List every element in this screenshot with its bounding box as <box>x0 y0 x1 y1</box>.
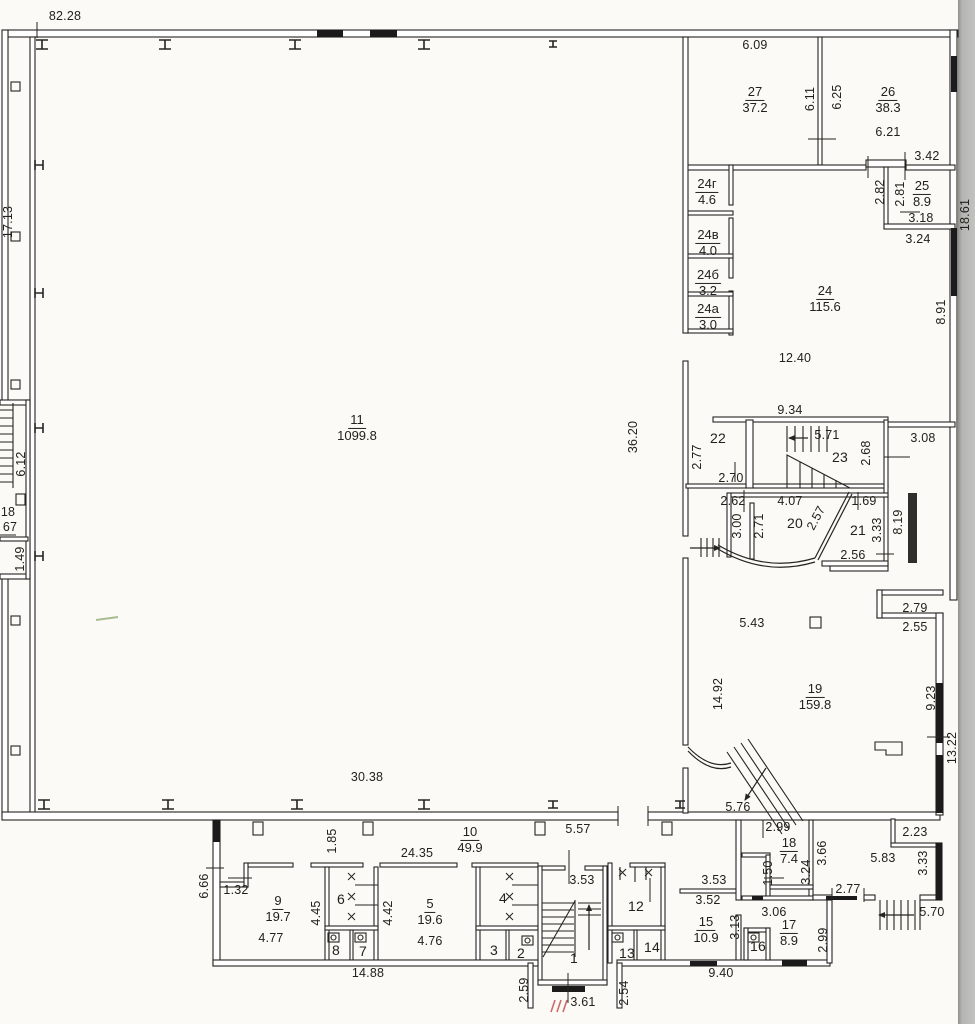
dim-left-stair-h: 6.12 <box>14 451 28 476</box>
room-label-13: 13 <box>619 945 635 961</box>
dim-r19-n1: 2.79 <box>902 601 927 615</box>
dim-r26-height: 6.25 <box>830 84 844 109</box>
room-label-9: 919.7 <box>265 894 290 924</box>
dim-door-24: 3.42 <box>914 149 939 163</box>
floor-plan-svg <box>0 0 975 1024</box>
dim-r20-h2: 2.71 <box>752 513 766 538</box>
room-label-15: 1510.9 <box>693 915 718 945</box>
dim-r18-right: 3.24 <box>799 859 813 884</box>
dim-r9-height: 4.45 <box>309 900 323 925</box>
dim-entry-steps: 5.70 <box>919 905 944 919</box>
dim-r19-r2: 13.22 <box>945 732 959 764</box>
dim-r17-outer: 2.99 <box>816 927 830 952</box>
dim-hall-width: 30.38 <box>351 770 383 784</box>
red-section-mark <box>551 1000 567 1012</box>
dim-r24-height: 8.91 <box>934 299 948 324</box>
dim-stair1-top: 3.53 <box>569 873 594 887</box>
dim-r19-height: 14.92 <box>711 678 725 710</box>
dim-porch-width: 5.83 <box>870 851 895 865</box>
dim-r22-height: 2.77 <box>690 444 704 469</box>
dim-r20-t1: 2.62 <box>720 494 745 508</box>
room-label-24b: 24б3.2 <box>695 268 721 298</box>
dim-left-stair-b: 1.49 <box>13 546 27 571</box>
dim-308: 3.08 <box>910 431 935 445</box>
dim-r25-w1: 3.18 <box>908 211 933 225</box>
dim-bl-height: 6.66 <box>197 873 211 898</box>
dim-r26-width: 6.21 <box>875 125 900 139</box>
room-label-24: 24115.6 <box>809 284 841 314</box>
dim-r25-h2: 2.81 <box>893 181 907 206</box>
dim-right-height: 18.61 <box>958 199 972 231</box>
room-label-22: 22 <box>710 430 726 446</box>
room-label-24a: 24а3.0 <box>695 302 721 332</box>
dim-r25-w2: 3.24 <box>905 232 930 246</box>
room-label-11: 111099.8 <box>337 413 377 443</box>
dim-hall-height: 36.20 <box>626 421 640 453</box>
dim-r22-width: 2.70 <box>718 471 743 485</box>
dim-r9-width: 4.77 <box>258 931 283 945</box>
dim-r27-width: 6.09 <box>742 38 767 52</box>
room-label-24g: 24г4.6 <box>695 177 718 207</box>
room-label-10: 1049.9 <box>457 825 482 855</box>
room-label-3: 3 <box>490 942 498 958</box>
dim-br-top: 2.99 <box>765 820 790 834</box>
room-label-26: 2638.3 <box>875 85 900 115</box>
dim-r21-top: 1.69 <box>851 494 876 508</box>
dim-r15-height: 3.13 <box>728 914 742 939</box>
left-stair-area: 67 <box>3 520 17 534</box>
dim-r15-t2: 3.53 <box>701 873 726 887</box>
dim-overall-top: 82.28 <box>49 9 81 23</box>
dim-bl-notch: 1.32 <box>223 883 248 897</box>
dim-r20-h1: 3.00 <box>730 513 744 538</box>
dim-r19-top: 5.43 <box>739 616 764 630</box>
room-label-2: 2 <box>517 945 525 961</box>
room-label-16: 16 <box>750 938 766 954</box>
room-label-14: 14 <box>644 939 660 955</box>
room-label-18: 187.4 <box>780 836 798 866</box>
room-label-23: 23 <box>832 449 848 465</box>
room-label-27: 2737.2 <box>742 85 767 115</box>
dim-corridor-w: 5.57 <box>565 822 590 836</box>
dim-r19-bottom: 5.76 <box>725 800 750 814</box>
dim-porch-door: 2.77 <box>835 882 860 896</box>
room-label-5: 519.6 <box>417 897 442 927</box>
room-label-8: 8 <box>332 942 340 958</box>
dim-stair1-bottom: 3.61 <box>570 995 595 1009</box>
room-label-6: 6 <box>337 891 345 907</box>
dim-vestibule-r: 2.54 <box>617 980 631 1005</box>
dim-r18-nook: 1.50 <box>761 860 775 885</box>
left-stair-num: 18 <box>1 505 15 519</box>
dim-r21-width: 2.56 <box>840 548 865 562</box>
dim-r5-height: 4.42 <box>381 900 395 925</box>
dim-shaft-height: 8.19 <box>891 509 905 534</box>
room-label-20: 20 <box>787 515 803 531</box>
room-label-24v: 24в4.0 <box>695 228 720 258</box>
dim-corridor-n: 1.85 <box>325 828 339 853</box>
room-label-21: 21 <box>850 522 866 538</box>
dim-r23-height: 2.68 <box>859 440 873 465</box>
dim-r5-width: 4.76 <box>417 934 442 948</box>
green-scan-mark <box>96 617 118 620</box>
dim-porch-top: 2.23 <box>902 825 927 839</box>
dim-r24-south: 9.34 <box>777 403 802 417</box>
dim-r19-n2: 2.55 <box>902 620 927 634</box>
room-label-17: 178.9 <box>780 918 798 948</box>
dim-block-width: 24.35 <box>401 846 433 860</box>
dim-r25-h1: 2.82 <box>873 179 887 204</box>
dim-overall-left: 17.13 <box>1 206 15 238</box>
dim-r24-width: 12.40 <box>779 351 811 365</box>
dim-bc-bottom: 9.40 <box>708 966 733 980</box>
dim-r21-height: 3.33 <box>870 517 884 542</box>
dim-bl-bottom: 14.88 <box>352 966 384 980</box>
room-label-1: 1 <box>570 950 578 966</box>
curved-walls <box>688 492 852 769</box>
room-label-7: 7 <box>359 943 367 959</box>
room-label-19: 19159.8 <box>799 682 832 712</box>
room-label-12: 12 <box>628 898 644 914</box>
floor-plan-sheet: 82.28 17.13 30.38 36.20 18.61 6.09 6.11 … <box>0 0 975 1024</box>
dim-vestibule-l: 2.59 <box>517 977 531 1002</box>
dim-r27-height: 6.11 <box>803 87 817 111</box>
room-label-4: 4 <box>499 890 507 906</box>
dim-r20-t2: 4.07 <box>777 494 802 508</box>
dim-r19-r1: 9.23 <box>924 685 938 710</box>
dim-r23-width: 5.71 <box>814 428 839 442</box>
dim-r15-t1: 3.52 <box>695 893 720 907</box>
dim-porch-height: 3.33 <box>916 850 930 875</box>
room-label-25: 258.9 <box>913 179 931 209</box>
dim-r18-outer: 3.66 <box>815 840 829 865</box>
